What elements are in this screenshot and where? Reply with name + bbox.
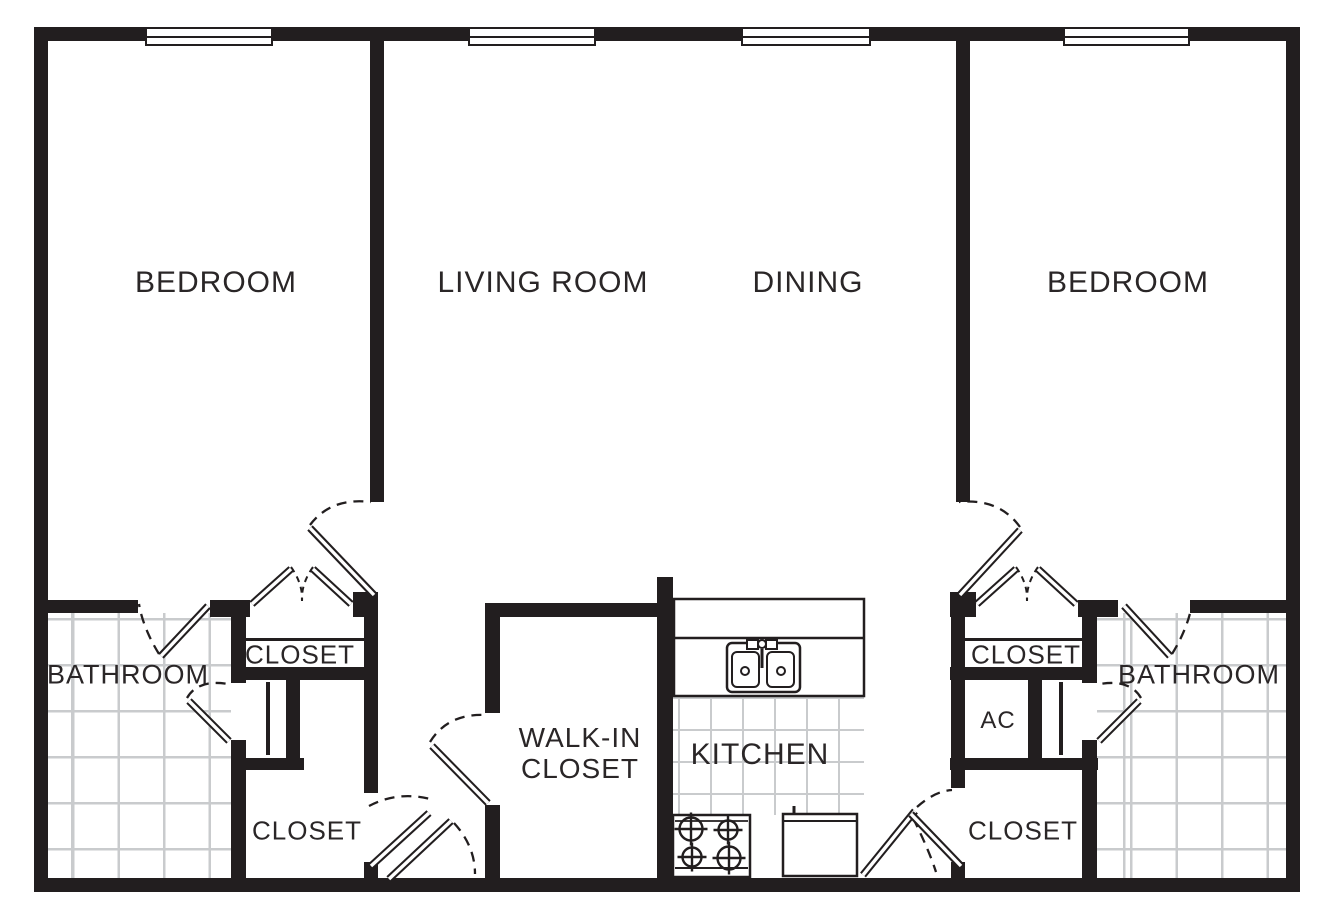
- door-swing-arc: [959, 502, 1020, 527]
- door-swing-arc: [430, 715, 486, 742]
- door-leaf: [1124, 606, 1170, 656]
- room-label-closet-bottom-left: CLOSET: [252, 816, 362, 847]
- door-leaf: [432, 746, 488, 803]
- door-leaf: [960, 530, 1020, 595]
- walk-in-closet-line2: CLOSET: [519, 753, 642, 784]
- doors-and-fixtures-layer: [0, 0, 1328, 919]
- bifold-door-leaf: [313, 569, 351, 604]
- room-label-ac: AC: [980, 707, 1015, 735]
- door-leaf: [371, 813, 429, 866]
- door-leaf: [1099, 701, 1139, 741]
- door-swing-arc: [917, 790, 952, 807]
- floor-plan: BEDROOM LIVING ROOM DINING BEDROOM BATHR…: [0, 0, 1328, 919]
- stove-icon: [673, 813, 750, 878]
- walk-in-closet-line1: WALK-IN: [519, 722, 642, 753]
- room-label-walk-in-closet: WALK-IN CLOSET: [519, 722, 642, 784]
- door-leaf: [911, 814, 961, 866]
- room-label-kitchen: KITCHEN: [691, 738, 830, 772]
- room-label-closet-top-left: CLOSET: [245, 640, 355, 671]
- room-label-closet-top-right: CLOSET: [971, 640, 1081, 671]
- door-swing-arc: [310, 501, 371, 525]
- room-label-closet-bottom-right: CLOSET: [968, 816, 1078, 847]
- door-swing-arc: [369, 796, 434, 806]
- room-label-dining: DINING: [753, 266, 864, 300]
- room-label-bathroom-left: BATHROOM: [47, 660, 209, 691]
- room-label-bedroom-right: BEDROOM: [1047, 266, 1209, 300]
- door-leaf: [161, 606, 208, 656]
- door-swing-arc: [139, 604, 159, 654]
- room-label-living-room: LIVING ROOM: [437, 266, 648, 300]
- door-leaf: [189, 701, 229, 741]
- door-leaf: [310, 528, 374, 595]
- door-swing-arc: [454, 823, 475, 874]
- door-leaf: [389, 821, 451, 879]
- door-leaf: [863, 811, 915, 875]
- door-swing-arc: [1172, 604, 1192, 654]
- room-label-bathroom-right: BATHROOM: [1118, 660, 1280, 691]
- appliance-icon: [783, 806, 857, 876]
- room-label-bedroom-left: BEDROOM: [135, 266, 297, 300]
- sink-icon: [727, 640, 800, 692]
- bifold-door-leaf: [252, 569, 291, 604]
- bifold-door-leaf: [1038, 569, 1076, 604]
